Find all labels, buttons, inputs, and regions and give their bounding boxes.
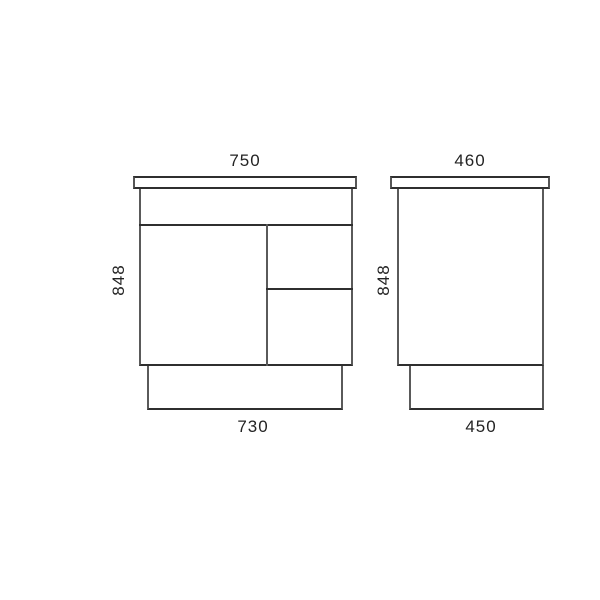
front-kickboard-width-dimension: 730	[213, 417, 293, 437]
side-height-dimension: 848	[374, 250, 394, 310]
front-kickboard	[147, 366, 343, 410]
front-top-width-dimension: 750	[133, 151, 357, 171]
front-drawer-divider-line	[266, 288, 353, 290]
side-countertop	[390, 176, 550, 189]
side-cabinet-body	[397, 189, 544, 366]
front-apron-line	[139, 224, 353, 226]
side-top-depth-dimension: 460	[390, 151, 550, 171]
side-kickboard	[409, 366, 544, 410]
front-cabinet-body	[139, 189, 353, 366]
front-countertop	[133, 176, 357, 189]
side-kickboard-depth-dimension: 450	[441, 417, 521, 437]
front-height-dimension: 848	[109, 250, 129, 310]
front-door-drawer-divider-line	[266, 224, 268, 366]
dimension-drawing: 750 848 730 460 848 450	[0, 0, 600, 600]
